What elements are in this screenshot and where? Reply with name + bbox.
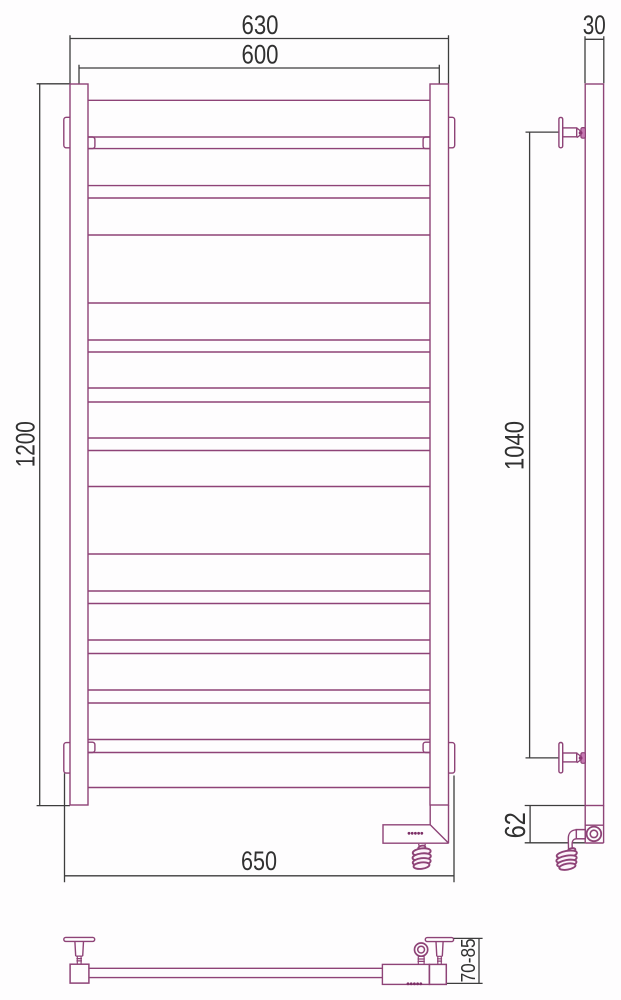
svg-text:70-85: 70-85	[458, 938, 480, 982]
svg-text:1200: 1200	[11, 421, 41, 467]
svg-text:600: 600	[242, 39, 279, 69]
svg-text:630: 630	[242, 10, 279, 40]
svg-text:1040: 1040	[499, 421, 529, 470]
svg-text:650: 650	[241, 846, 277, 876]
svg-text:62: 62	[500, 812, 532, 838]
svg-text:30: 30	[583, 10, 606, 40]
